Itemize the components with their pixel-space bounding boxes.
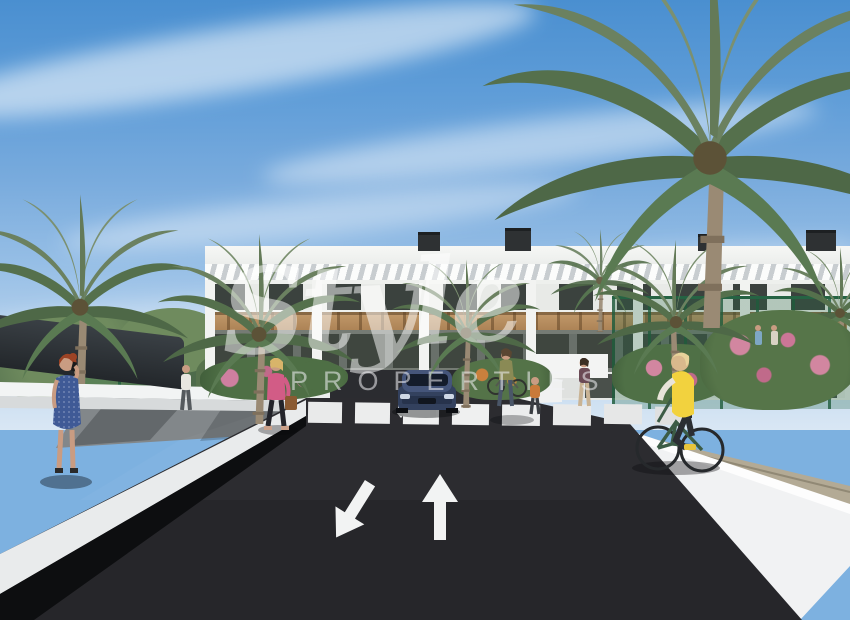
pedestrian-pink-top — [254, 358, 302, 434]
street-render-scene: Style PROPERTIES — [0, 0, 850, 620]
pedestrian-with-bicycle — [484, 348, 528, 426]
pedestrian-blue-dress — [42, 350, 92, 484]
large-palm-tree — [470, 0, 850, 328]
balcony-figures — [750, 324, 784, 348]
pedestrian-woman — [572, 358, 596, 414]
pedestrian-child — [526, 376, 544, 420]
cyclist — [628, 336, 728, 476]
pedestrian-background-man — [174, 364, 198, 418]
